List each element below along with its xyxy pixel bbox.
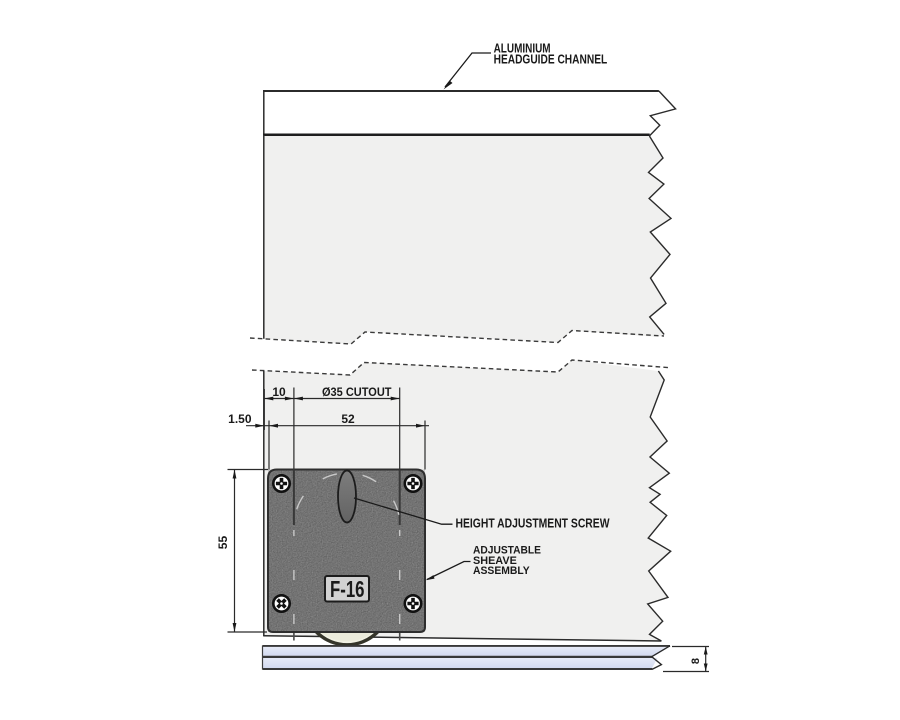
svg-text:52: 52 <box>341 412 355 426</box>
svg-text:F-16: F-16 <box>330 576 365 602</box>
svg-text:55: 55 <box>216 536 230 550</box>
svg-text:HEADGUIDE CHANNEL: HEADGUIDE CHANNEL <box>494 52 608 66</box>
svg-text:Ø35 CUTOUT: Ø35 CUTOUT <box>322 385 392 399</box>
svg-text:8: 8 <box>690 658 702 664</box>
svg-text:HEIGHT ADJUSTMENT SCREW: HEIGHT ADJUSTMENT SCREW <box>456 517 610 531</box>
svg-text:ASSEMBLY: ASSEMBLY <box>473 565 530 577</box>
svg-text:1.50: 1.50 <box>228 412 252 426</box>
svg-text:10: 10 <box>272 385 286 399</box>
